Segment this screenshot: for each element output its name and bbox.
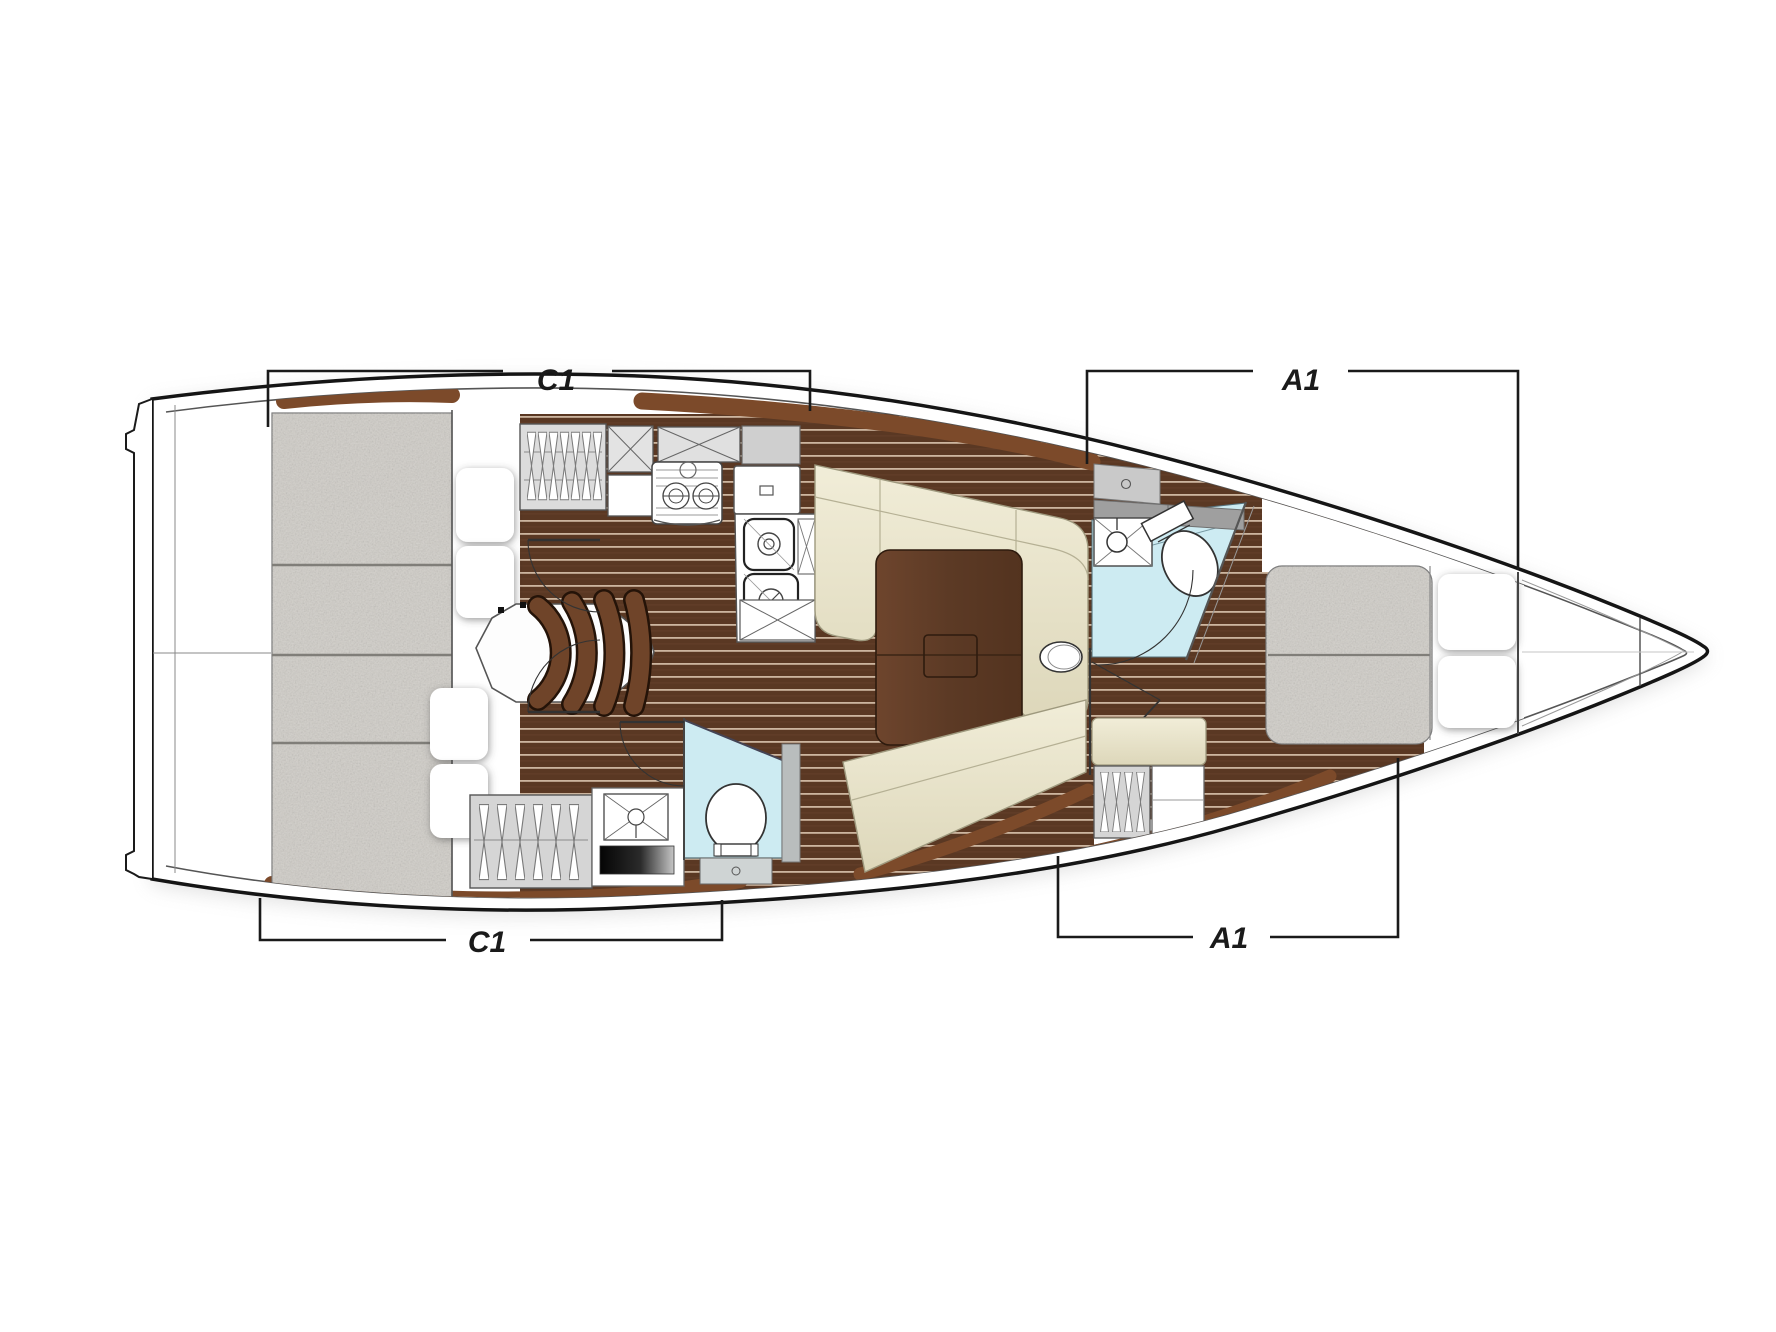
- label-c1-top: C1: [537, 364, 575, 397]
- galley-sink-counter: [735, 514, 815, 642]
- companionway: [476, 600, 654, 706]
- shower-pan-icon: [604, 794, 668, 840]
- galley-stove: [652, 462, 722, 525]
- galley-gray-panel: [742, 426, 800, 464]
- floorplan-drawing: C1 A1 C1 A1: [0, 0, 1776, 1332]
- forward-cabin-bench: [1092, 718, 1206, 765]
- pillow: [1438, 656, 1516, 728]
- locker-crossed: [608, 426, 653, 472]
- toilet-icon: [700, 784, 772, 884]
- salon-table: [876, 550, 1022, 745]
- locker-crossed-small: [798, 519, 815, 574]
- locker-crossed-wide: [658, 427, 740, 462]
- pillow: [456, 468, 514, 542]
- stool: [1040, 642, 1082, 672]
- shower-glass-strip: [600, 846, 674, 874]
- label-a1-bottom: A1: [1209, 922, 1248, 955]
- label-c1-bottom: C1: [468, 926, 506, 959]
- sink-basin: [744, 519, 794, 570]
- burner-icon: [663, 483, 689, 509]
- pillow: [1438, 574, 1516, 650]
- sink-basin: [1107, 532, 1127, 552]
- galley-top-box: [608, 475, 653, 516]
- head-lockers-band-light: [1094, 464, 1160, 504]
- transom: [126, 399, 152, 879]
- pillow: [430, 688, 488, 760]
- label-a1-top: A1: [1281, 364, 1320, 397]
- burner-icon: [693, 483, 719, 509]
- hatch-hardware: [520, 602, 526, 608]
- locker-crossed: [740, 600, 815, 640]
- aft-head-side-wall: [782, 744, 800, 862]
- aft-berth-mattress-speckle: [272, 413, 452, 910]
- pillow: [456, 546, 514, 618]
- galley-worktop: [734, 466, 800, 514]
- hatch-hardware: [498, 607, 504, 613]
- yacht-floorplan-canvas: C1 A1 C1 A1: [0, 0, 1776, 1332]
- step-tread: [634, 600, 641, 706]
